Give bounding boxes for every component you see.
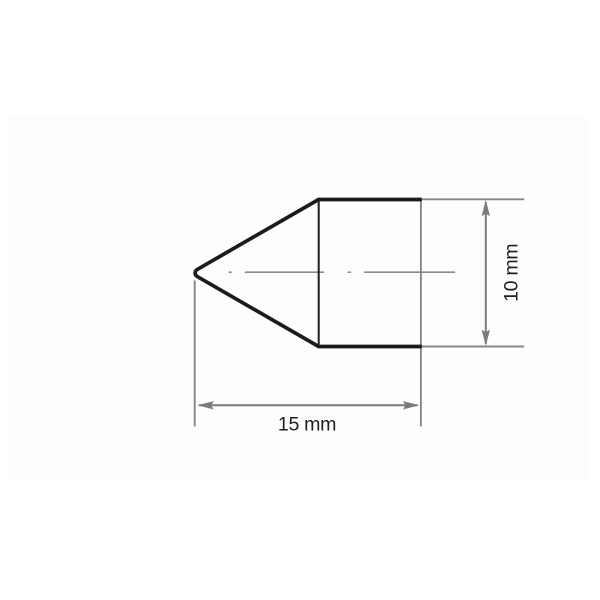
svg-text:10 mm: 10 mm (500, 244, 522, 302)
svg-text:15 mm: 15 mm (278, 414, 336, 436)
